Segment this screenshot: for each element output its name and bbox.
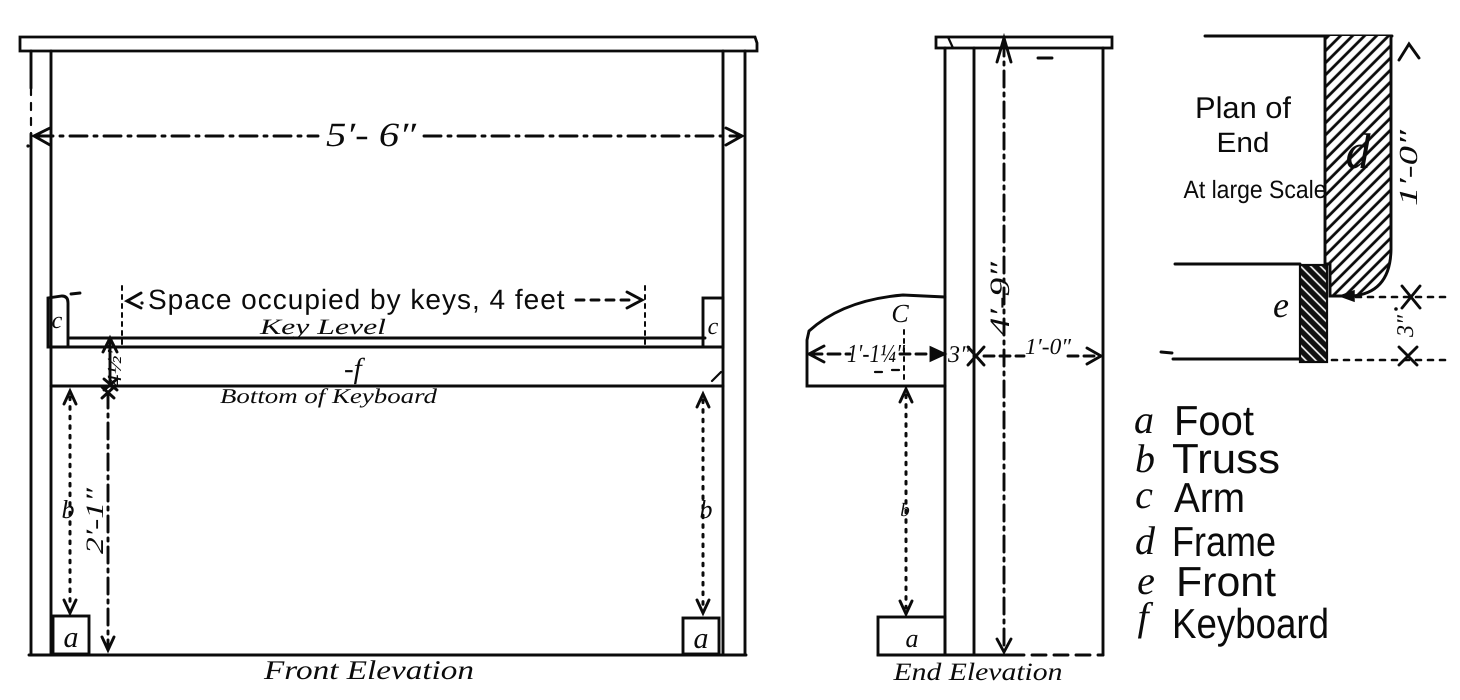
svg-text:4′-9″: 4′-9″ [985,262,1016,336]
svg-text:Key Level: Key Level [259,314,386,339]
svg-text:1′-1¼″: 1′-1¼″ [847,339,906,368]
svg-text:1′-0″: 1′-0″ [1025,334,1071,359]
svg-text:c: c [52,308,63,334]
svg-text:End: End [1217,127,1270,158]
svg-text:C: C [891,299,909,328]
svg-text:c: c [1135,472,1153,517]
svg-text:e: e [1273,285,1289,325]
svg-text:1′-0″: 1′-0″ [1394,128,1423,206]
svg-text:3″: 3″ [1393,314,1419,338]
svg-text:Arm: Arm [1174,474,1245,521]
svg-text:2′-1″: 2′-1″ [82,487,109,554]
svg-text:d: d [1135,518,1156,563]
svg-text:Space occupied by keys, 4 feet: Space occupied by keys, 4 feet [148,284,566,315]
svg-text:Keyboard: Keyboard [1172,600,1329,647]
svg-text:At large Scale: At large Scale [1184,176,1327,204]
svg-text:Front: Front [1176,558,1276,605]
svg-text:a: a [694,622,709,655]
svg-text:Front Elevation: Front Elevation [263,655,474,685]
svg-text:c: c [708,314,719,340]
svg-text:5′- 6″: 5′- 6″ [326,117,417,154]
svg-text:End Elevation: End Elevation [892,659,1062,686]
svg-text:b: b [700,495,713,524]
svg-text:Bottom of Keyboard: Bottom of Keyboard [220,384,438,408]
svg-text:Plan of: Plan of [1195,92,1292,125]
svg-text:4½″: 4½″ [104,344,126,387]
svg-text:-f: -f [344,353,366,385]
svg-text:3″: 3″ [947,342,971,368]
svg-text:b: b [900,500,910,521]
svg-text:a: a [64,621,79,654]
svg-text:a: a [906,624,919,653]
svg-text:d: d [1346,123,1372,179]
svg-text:b: b [62,495,75,524]
